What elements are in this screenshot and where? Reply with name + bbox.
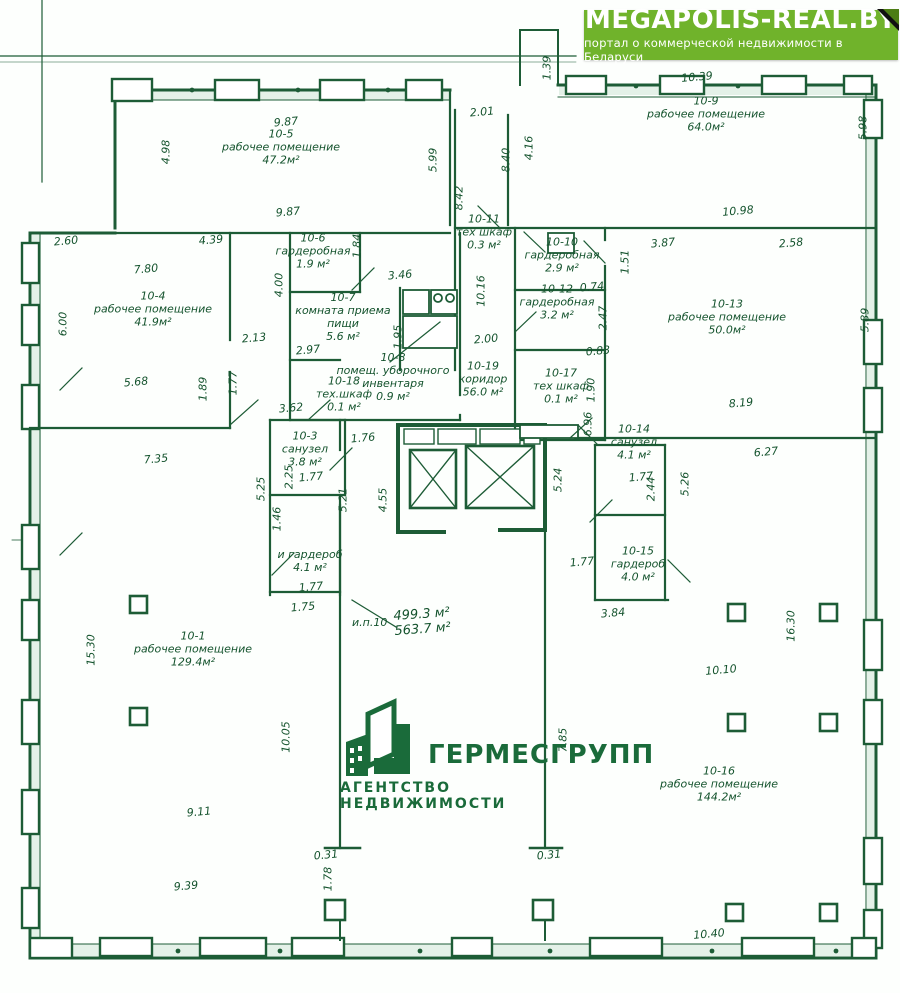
hermes-watermark: ГЕРМЕСГРУПП АГЕНТСТВО НЕДВИЖИМОСТИ	[338, 696, 604, 808]
dimension-label: 15.30	[85, 634, 98, 666]
room-label: 10-5рабочее помещение47.2м²	[222, 129, 340, 168]
room-name: рабочее помещение	[660, 779, 778, 792]
dimension-label: 1.95	[392, 325, 405, 350]
dimension-label: 2.58	[778, 235, 804, 250]
dimension-label: 1.78	[322, 867, 335, 892]
exterior-walls	[30, 30, 876, 958]
dimension-label: 6.96	[582, 412, 595, 437]
dimension-label: 1.77	[298, 579, 324, 594]
dimension-label: 0.31	[536, 847, 562, 862]
room-label: 10-3санузел3.8 м²	[282, 431, 328, 470]
banner-subtitle: портал о коммерческой недвижимости в Бел…	[584, 36, 898, 64]
room-name: санузел	[611, 437, 657, 450]
dimension-label: 6.00	[57, 312, 70, 337]
total-area-label: и.п.10	[352, 616, 387, 629]
dimension-label: 10.16	[475, 275, 488, 307]
dimension-label: 1.77	[298, 469, 324, 484]
room-label: 10-18тех.шкаф0.1 м²	[316, 376, 372, 415]
dimension-label: 4.98	[160, 140, 173, 165]
room-area: 56.0 м²	[459, 386, 508, 399]
room-name: гардеробная	[276, 246, 351, 259]
dimension-label: 7.80	[133, 261, 159, 276]
dimension-label: 5.99	[427, 148, 440, 173]
dimension-label: 1.75	[290, 599, 316, 614]
banner-title: MEGAPOLIS-REAL.BY	[585, 7, 897, 33]
dimension-label: 3.46	[387, 267, 413, 282]
dimension-label: 5.98	[857, 116, 870, 141]
room-label: 10-13рабочее помещение50.0м²	[668, 299, 786, 338]
dimension-label: 16.30	[785, 610, 798, 642]
room-area: 0.1 м²	[316, 401, 372, 414]
dimension-label: 1.76	[350, 430, 376, 445]
room-area: 2.9 м²	[525, 262, 600, 275]
dimension-label: 9.11	[186, 804, 212, 819]
dimension-label: 2.47	[597, 306, 610, 331]
dimension-label: 5.25	[255, 477, 268, 502]
dimension-label: 0.74	[579, 279, 605, 294]
dimension-label: 3.87	[650, 235, 676, 250]
dimension-label: 9.87	[275, 204, 301, 219]
room-area: 1.9 м²	[276, 258, 351, 271]
hermes-tagline: АГЕНТСТВО НЕДВИЖИМОСТИ	[340, 780, 604, 812]
room-area: 3.2 м²	[520, 309, 595, 322]
room-label: 10-16рабочее помещение144.2м²	[660, 766, 778, 805]
dimension-label: 10.10	[705, 662, 738, 678]
room-label: 10-11тех шкаф0.3 м²	[456, 214, 512, 253]
dimension-label: 4.00	[273, 273, 286, 298]
room-area: 64.0м²	[647, 121, 765, 134]
elevator-shaft-icon	[410, 446, 534, 508]
dimension-label: 2.13	[241, 330, 267, 345]
dimension-label: 2.00	[473, 331, 499, 346]
room-label: и гардероб4.1 м²	[277, 549, 342, 575]
dimension-label: 0.83	[585, 343, 611, 358]
dimension-label: 1.84	[351, 234, 364, 259]
dimension-label: 8.42	[453, 186, 466, 211]
room-label: 10-17тех шкаф0.1 м²	[533, 368, 589, 407]
dimension-label: 2.44	[645, 477, 658, 502]
megapolis-banner: MEGAPOLIS-REAL.BY портал о коммерческой …	[584, 10, 898, 60]
room-name: санузел	[282, 444, 328, 457]
room-area: 4.0 м²	[611, 571, 665, 584]
dimension-label: 8.19	[728, 395, 754, 410]
room-label: 10-7комната приема пищи5.6 м²	[279, 292, 407, 344]
dimension-label: 10.40	[693, 926, 726, 942]
dimension-label: 1.77	[227, 371, 240, 396]
dimension-label: 3.84	[600, 605, 626, 620]
dimension-label: 5.89	[859, 308, 872, 333]
room-name: тех шкаф	[456, 227, 512, 240]
dimension-label: 2.01	[469, 104, 495, 119]
dimension-label: 3.62	[278, 400, 304, 415]
room-label: 10-10гардеробная2.9 м²	[525, 237, 600, 276]
room-name: гардеробная	[525, 250, 600, 263]
room-name: коридор	[459, 374, 508, 387]
dimension-label: 2.97	[295, 342, 321, 357]
dimension-label: 10.98	[722, 203, 755, 219]
room-name: рабочее помещение	[668, 312, 786, 325]
room-area: 50.0м²	[668, 324, 786, 337]
room-label: 10-19коридор56.0 м²	[459, 361, 508, 400]
room-label: 10-6гардеробная1.9 м²	[276, 233, 351, 272]
dimension-label: 1.89	[197, 377, 210, 402]
room-name: тех шкаф	[533, 381, 589, 394]
dimension-label: 4.39	[198, 232, 224, 247]
dimension-label: 1.51	[619, 250, 632, 275]
dimension-label: 0.31	[313, 847, 339, 862]
dimension-label: 7.35	[143, 451, 169, 466]
dimension-label: 10.39	[681, 69, 714, 85]
room-name: гардероб	[611, 559, 665, 572]
room-area: 129.4м²	[134, 656, 252, 669]
dimension-label: 1.77	[569, 554, 595, 569]
dimension-label: 1.39	[541, 56, 554, 81]
room-label: 10-9рабочее помещение64.0м²	[647, 96, 765, 135]
room-area: 0.1 м²	[533, 393, 589, 406]
room-area: 4.1 м²	[611, 449, 657, 462]
dimension-label: 1.90	[585, 378, 598, 403]
buildings-icon	[338, 696, 426, 782]
floor-plan-drawing	[0, 0, 900, 993]
dimension-label: 2.60	[53, 233, 79, 248]
room-area: 47.2м²	[222, 154, 340, 167]
room-area: 41.9м²	[94, 316, 212, 329]
dimension-label: 5.26	[679, 472, 692, 497]
dimension-label: 5.21	[337, 488, 350, 513]
room-area: 0.3 м²	[456, 239, 512, 252]
dimension-label: 4.55	[377, 488, 390, 513]
room-name: комната приема пищи	[279, 305, 407, 331]
room-area: 4.1 м²	[277, 562, 342, 575]
room-name: рабочее помещение	[222, 142, 340, 155]
room-name: рабочее помещение	[134, 644, 252, 657]
dimension-label: 9.39	[173, 878, 199, 893]
dimension-label: 5.24	[552, 468, 565, 493]
room-label: 10-4рабочее помещение41.9м²	[94, 291, 212, 330]
dimension-label: 1.46	[271, 507, 284, 532]
dimension-label: 10.05	[280, 721, 293, 753]
floorplan-scan: { "banner": { "title": "MEGAPOLIS-REAL.B…	[0, 0, 900, 993]
room-name: рабочее помещение	[647, 109, 765, 122]
dimension-label: 6.27	[753, 444, 779, 459]
room-area: 144.2м²	[660, 791, 778, 804]
room-name: рабочее помещение	[94, 304, 212, 317]
room-name: гардеробная	[520, 297, 595, 310]
room-label: 10-14санузел4.1 м²	[611, 424, 657, 463]
dimension-label: 4.16	[523, 136, 536, 161]
room-label: 10-1рабочее помещение129.4м²	[134, 631, 252, 670]
total-area-value-2: 563.7 м²	[394, 621, 451, 640]
room-name: тех.шкаф	[316, 389, 372, 402]
room-area: 5.6 м²	[279, 331, 407, 344]
dimension-label: 5.68	[123, 374, 149, 389]
dimension-label: 9.87	[273, 114, 299, 129]
folded-corner-inner-icon	[883, 9, 899, 25]
room-label: 10-15гардероб4.0 м²	[611, 546, 665, 585]
dimension-label: 2.25	[283, 465, 296, 490]
total-area-note: и.п.10 499.3 м² 563.7 м²	[352, 608, 451, 638]
hermes-name: ГЕРМЕСГРУПП	[428, 740, 654, 770]
dimension-label: 8.40	[500, 148, 513, 173]
